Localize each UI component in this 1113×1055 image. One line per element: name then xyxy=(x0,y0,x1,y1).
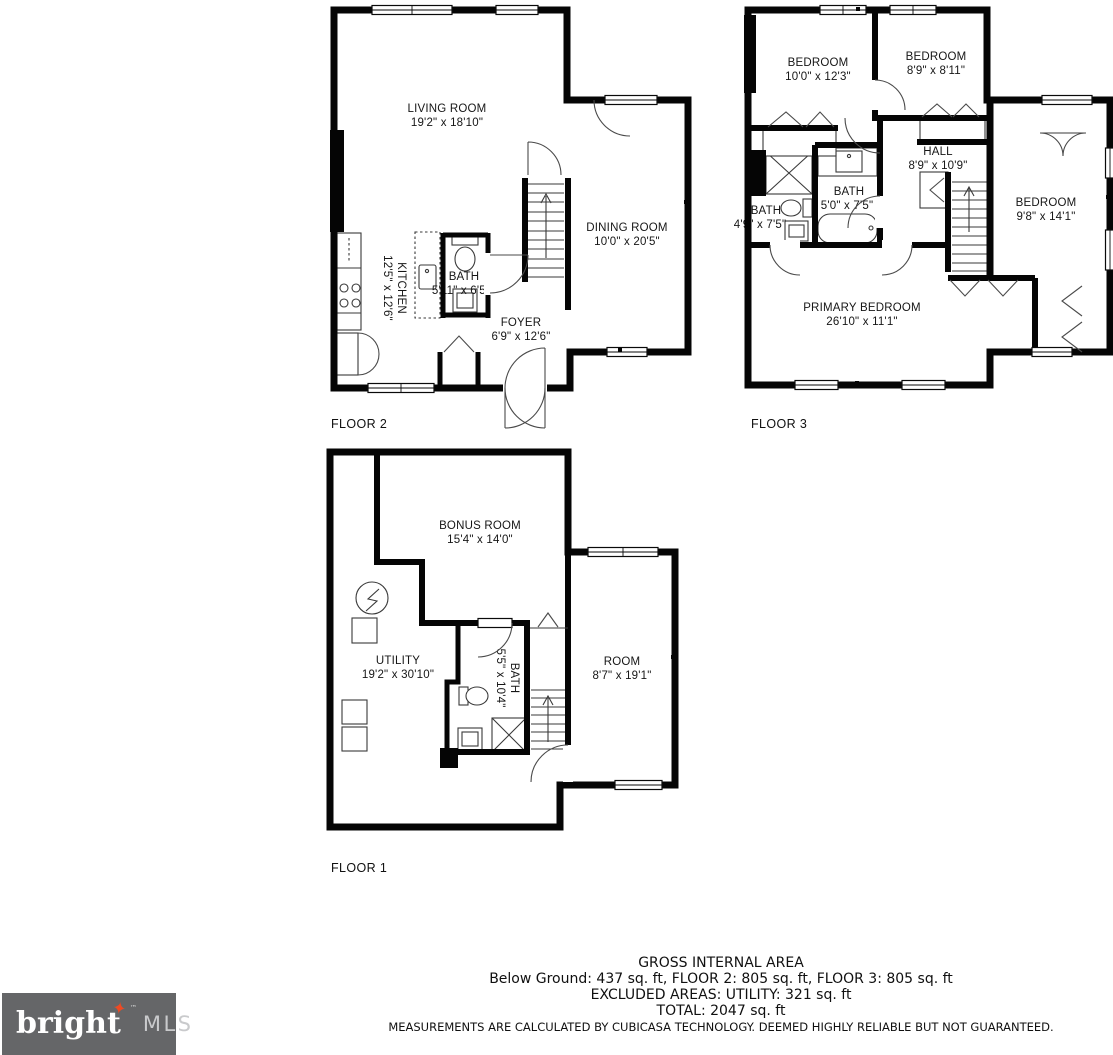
room-dims-bedroom2: 8'9" x 8'11" xyxy=(907,65,965,77)
room-dims-living: 19'2" x 18'10" xyxy=(411,117,483,129)
room-dims-bedroom3: 9'8" x 14'1" xyxy=(1016,211,1075,223)
room-dims-bonus: 15'4" x 14'0" xyxy=(447,534,513,546)
room-dims-dining: 10'0" x 20'5" xyxy=(594,236,660,248)
room-label-bonus: BONUS ROOM xyxy=(439,520,521,532)
room-label-bath-center: BATH xyxy=(834,186,865,198)
floor2-plan: LIVING ROOM 19'2" x 18'10" DINING ROOM 1… xyxy=(330,6,688,432)
floor2-stairs xyxy=(528,184,564,277)
room-label-bath2: BATH xyxy=(449,271,480,283)
room-label-bath1-group: BATH 5'5" x 10'4" xyxy=(494,648,520,707)
floor1-bath-walls xyxy=(447,623,458,752)
room-dims-foyer: 6'9" x 12'6" xyxy=(491,331,550,343)
summary-line2: EXCLUDED AREAS: UTILITY: 321 sq. ft xyxy=(591,987,852,1003)
room-label-foyer: FOYER xyxy=(501,317,542,329)
room-label-bedroom1: BEDROOM xyxy=(788,57,849,69)
floor3-fixtures xyxy=(763,118,985,243)
room-label-bedroom3: BEDROOM xyxy=(1016,197,1077,209)
floor3-plan: BEDROOM 10'0" x 12'3" BEDROOM 8'9" x 8'1… xyxy=(734,6,1113,432)
floor1-tag: FLOOR 1 xyxy=(331,861,387,875)
room-dims-bath1: 5'5" x 10'4" xyxy=(494,648,506,707)
brand-wordmark: bright ✦ ™ xyxy=(16,1009,121,1039)
room-dims-primary: 26'10" x 11'1" xyxy=(826,316,897,328)
room-label-kitchen-group: KITCHEN 12'5" x 12'6" xyxy=(381,255,407,321)
floor2-tag: FLOOR 2 xyxy=(331,417,387,431)
room-label-room: ROOM xyxy=(604,656,641,668)
room-label-bedroom2: BEDROOM xyxy=(906,51,967,63)
room-label-bath-left: BATH xyxy=(751,205,782,217)
room-label-utility: UTILITY xyxy=(376,655,420,667)
summary-title: GROSS INTERNAL AREA xyxy=(638,955,804,971)
room-dims-bedroom1: 10'0" x 12'3" xyxy=(785,71,851,83)
floor1-stairs xyxy=(531,690,565,749)
floor3-stairs xyxy=(952,182,988,271)
area-summary: GROSS INTERNAL AREA Below Ground: 437 sq… xyxy=(388,955,1053,1034)
summary-line1: Below Ground: 437 sq. ft, FLOOR 2: 805 s… xyxy=(489,971,953,987)
summary-disclaimer: MEASUREMENTS ARE CALCULATED BY CUBICASA … xyxy=(388,1020,1053,1034)
floor1-ticks xyxy=(328,449,675,828)
brand-text: bright xyxy=(16,1006,121,1041)
brand-suffix: MLS xyxy=(143,1012,194,1036)
room-dims-utility: 19'2" x 30'10" xyxy=(362,669,434,681)
room-dims-bath-left: 4'9" x 7'5" xyxy=(734,219,786,231)
floor3-tag: FLOOR 3 xyxy=(751,417,807,431)
room-label-primary: PRIMARY BEDROOM xyxy=(803,302,921,314)
room-label-kitchen: KITCHEN xyxy=(395,262,407,314)
trademark-symbol: ™ xyxy=(130,1005,137,1012)
room-dims-hall: 8'9" x 10'9" xyxy=(908,160,967,172)
room-label-living: LIVING ROOM xyxy=(408,103,487,115)
summary-line3: TOTAL: 2047 sq. ft xyxy=(656,1003,786,1019)
room-dims-bath-center: 5'0" x 7'5" xyxy=(821,200,873,212)
floorplan-page: LIVING ROOM 19'2" x 18'10" DINING ROOM 1… xyxy=(0,0,1113,1055)
floorplan-drawing: LIVING ROOM 19'2" x 18'10" DINING ROOM 1… xyxy=(0,0,1113,1055)
floor1-plan: BONUS ROOM 15'4" x 14'0" UTILITY 19'2" x… xyxy=(328,449,675,875)
room-dims-kitchen: 12'5" x 12'6" xyxy=(381,255,393,321)
room-dims-room: 8'7" x 19'1" xyxy=(592,670,651,682)
room-label-dining: DINING ROOM xyxy=(586,222,667,234)
room-label-hall: HALL xyxy=(923,146,953,158)
room-label-bath1: BATH xyxy=(508,663,520,694)
brightmls-logo: bright ✦ ™ MLS xyxy=(2,993,176,1055)
floor1-outer-walls xyxy=(330,452,675,827)
star-icon: ✦ xyxy=(110,1000,127,1019)
